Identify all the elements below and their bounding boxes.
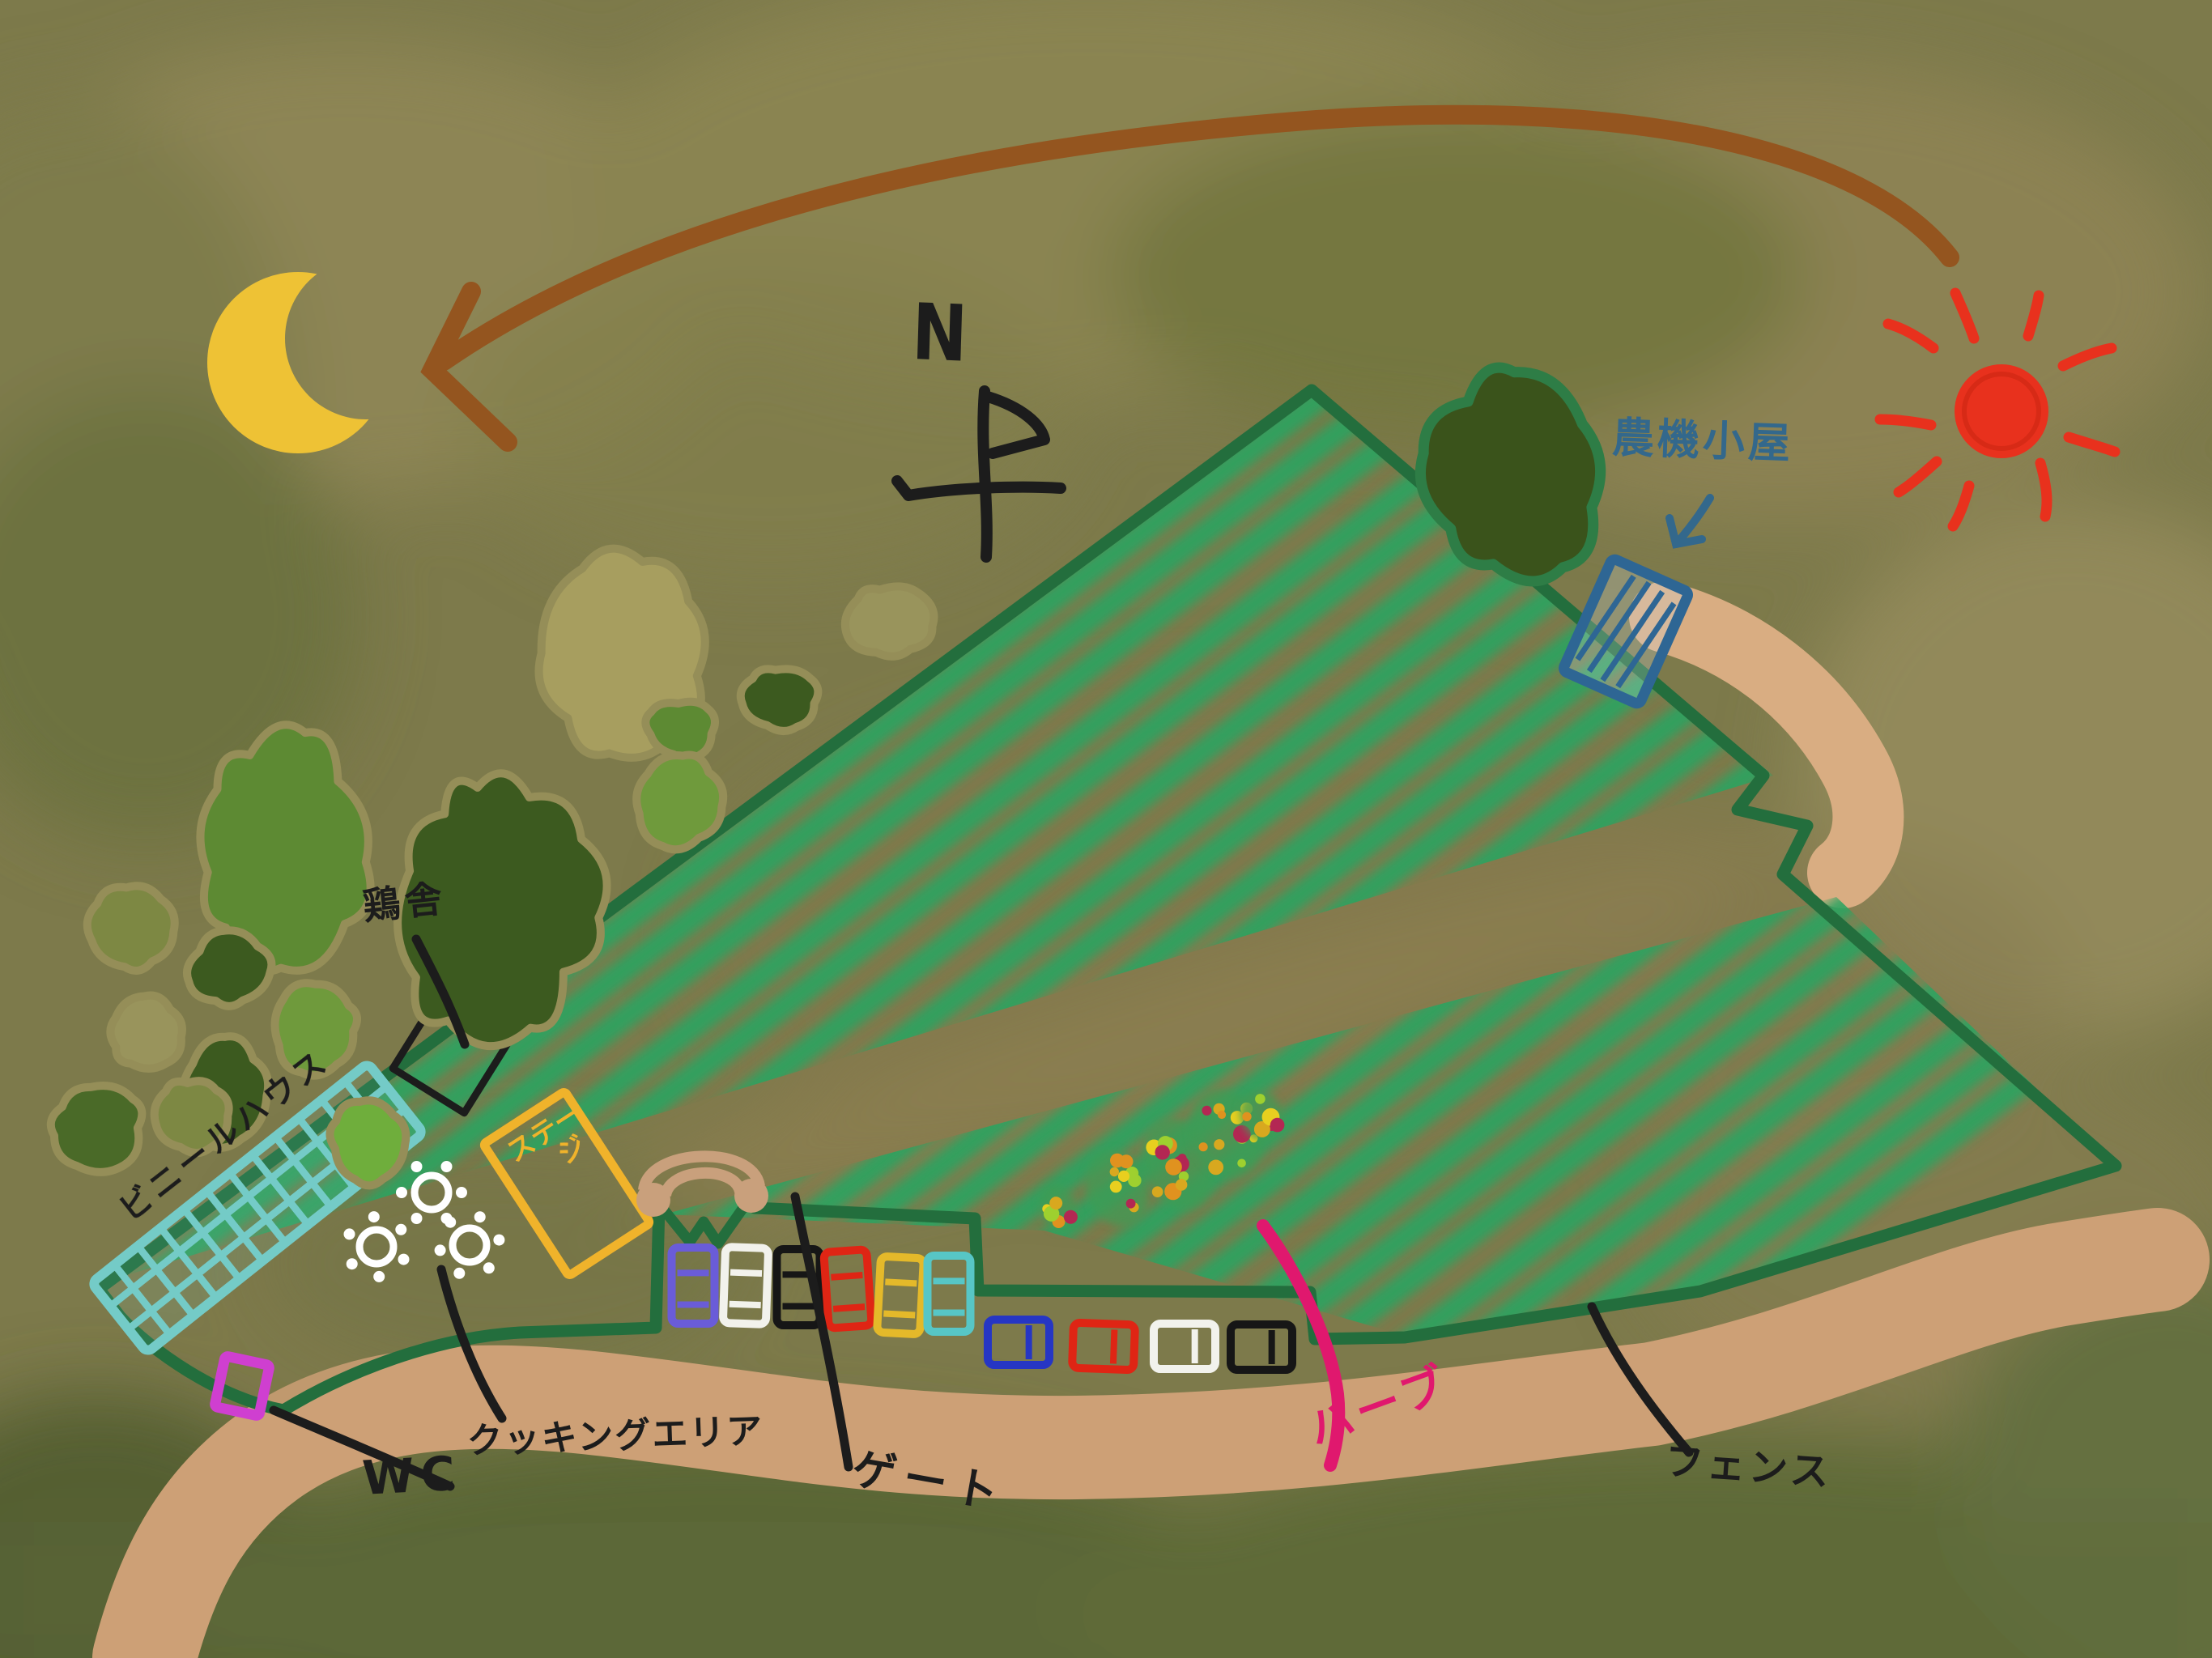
tree bbox=[741, 669, 819, 731]
herb-flower-dot bbox=[1155, 1145, 1170, 1159]
herb-flower-dot bbox=[1237, 1159, 1246, 1168]
table-chair bbox=[483, 1262, 495, 1273]
herb-flower-dot bbox=[1064, 1210, 1078, 1224]
herb-flower-dot bbox=[1110, 1167, 1119, 1176]
table-chair bbox=[368, 1211, 380, 1222]
table-chair bbox=[435, 1244, 446, 1256]
gate-post-left bbox=[636, 1183, 670, 1217]
chicken-coop-label: 鶏舎 bbox=[361, 878, 449, 926]
herb-flower-dot bbox=[1208, 1160, 1223, 1175]
tree bbox=[87, 886, 175, 971]
table-chair bbox=[441, 1161, 453, 1172]
tree bbox=[187, 930, 271, 1006]
table-chair bbox=[395, 1224, 406, 1235]
moon-icon bbox=[186, 251, 421, 478]
table-chair bbox=[453, 1268, 465, 1279]
table-chair bbox=[474, 1211, 486, 1222]
table-chair bbox=[411, 1161, 423, 1172]
tree bbox=[110, 995, 182, 1068]
herb-flower-dot bbox=[1128, 1174, 1141, 1187]
herb-flower-dot bbox=[1202, 1106, 1211, 1116]
tree bbox=[845, 586, 934, 656]
table-chair bbox=[396, 1187, 407, 1198]
farm-map: N 農機小屋 鶏舎 ビニールハウス ステー ジ WC クッキングエリア ゲート … bbox=[0, 0, 2212, 1658]
herb-flower-dot bbox=[1214, 1139, 1224, 1150]
table-chair bbox=[456, 1187, 467, 1198]
herb-flower-dot bbox=[1176, 1179, 1188, 1191]
herb-flower-dot bbox=[1242, 1112, 1251, 1121]
machine-shed-label: 農機小屋 bbox=[1611, 416, 1794, 466]
gate-post-right bbox=[734, 1179, 768, 1213]
car-windshield bbox=[1113, 1329, 1114, 1363]
tree bbox=[636, 755, 723, 849]
fence-label: フェンス bbox=[1663, 1441, 1833, 1494]
herb-flower-dot bbox=[1110, 1181, 1122, 1193]
herb-flower-dot bbox=[1126, 1199, 1136, 1209]
herb-flower-dot bbox=[1199, 1142, 1208, 1151]
car-rear-window bbox=[833, 1307, 865, 1309]
map-drawing bbox=[0, 0, 2212, 1658]
car-windshield bbox=[730, 1273, 762, 1273]
table-chair bbox=[344, 1228, 355, 1239]
tree bbox=[51, 1086, 143, 1172]
table-chair bbox=[398, 1254, 410, 1265]
table-chair bbox=[493, 1235, 504, 1246]
car-windshield bbox=[885, 1282, 917, 1283]
herb-flower-dot bbox=[1049, 1197, 1062, 1209]
north-label: N bbox=[911, 291, 968, 376]
herb-flower-dot bbox=[1118, 1171, 1129, 1182]
tree bbox=[330, 1100, 406, 1185]
table-chair bbox=[445, 1217, 456, 1228]
car-rear-window bbox=[883, 1313, 915, 1315]
herb-flower-dot bbox=[1255, 1094, 1266, 1104]
herb-flower-dot bbox=[1165, 1158, 1182, 1175]
herb-flower-dot bbox=[1152, 1186, 1163, 1197]
herb-flower-dot bbox=[1270, 1118, 1285, 1133]
car-rear-window bbox=[730, 1304, 761, 1305]
table-chair bbox=[347, 1258, 358, 1269]
herb-flower-dot bbox=[1218, 1111, 1226, 1119]
herb-flower-dot bbox=[1110, 1154, 1125, 1168]
car-windshield bbox=[831, 1275, 862, 1278]
table-chair bbox=[373, 1271, 385, 1282]
wc-label: WC bbox=[361, 1449, 463, 1503]
table-chair bbox=[411, 1213, 423, 1224]
